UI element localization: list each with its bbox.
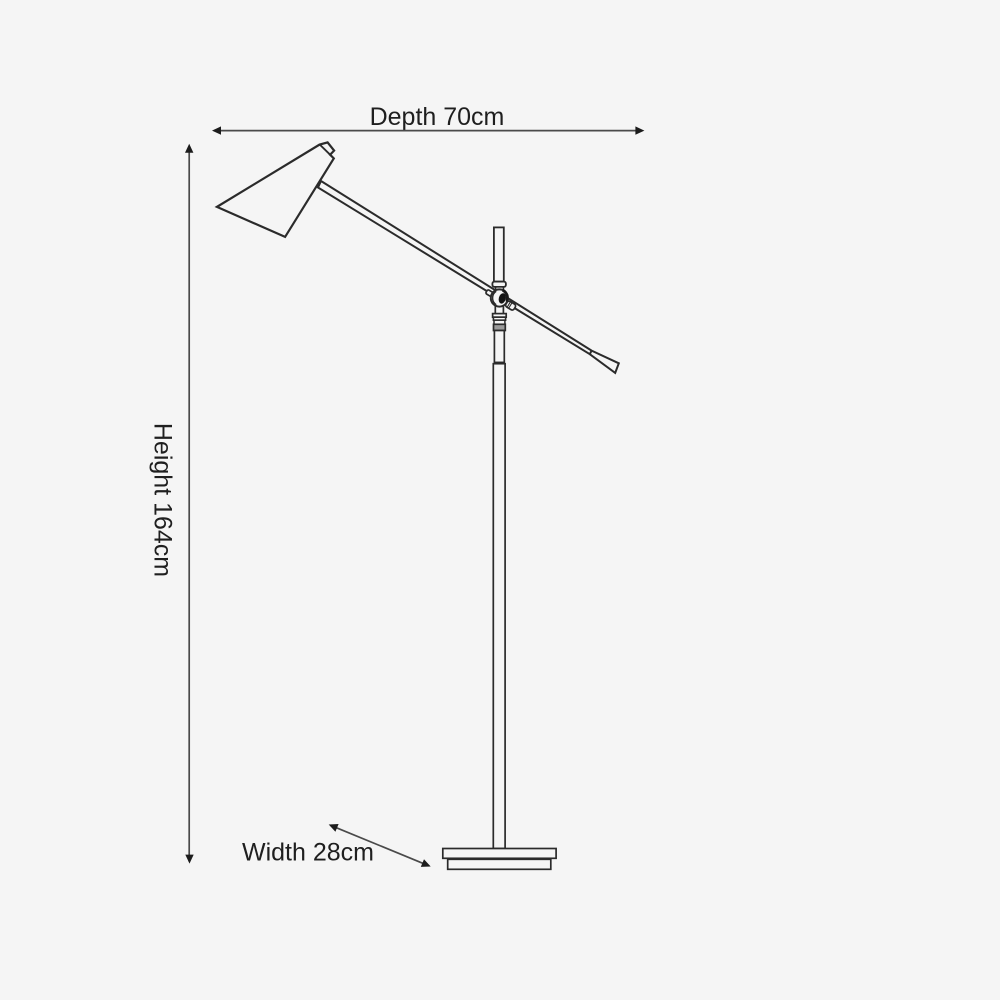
svg-text:Width 28cm: Width 28cm [242,839,374,867]
svg-text:Height 164cm: Height 164cm [149,423,177,577]
svg-text:Depth 70cm: Depth 70cm [370,103,505,131]
